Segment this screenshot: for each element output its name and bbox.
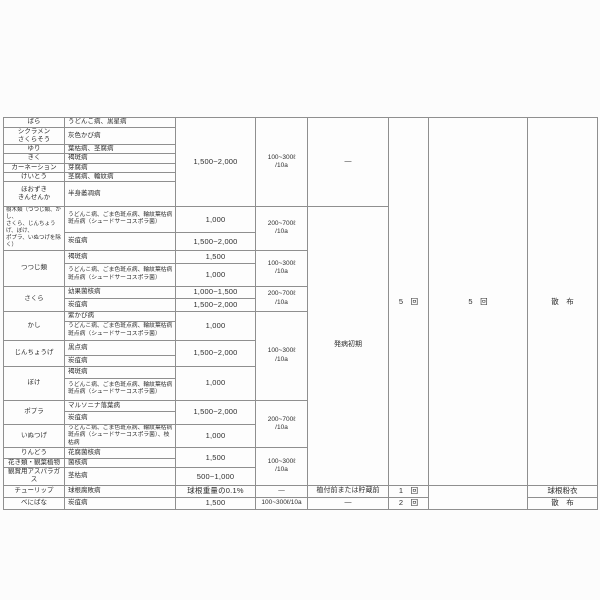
disease-cell: 炭疽病 xyxy=(65,355,176,366)
plant-cell: ほおずききんせんか xyxy=(4,181,65,206)
disease-cell: 茎腐病、輪紋病 xyxy=(65,172,176,181)
disease-cell: 炭疽病 xyxy=(65,411,176,424)
dilution-cell: 1,500 xyxy=(176,250,256,263)
dilution-cell: 球根重量の0.1% xyxy=(176,485,256,497)
disease-cell: 球根腐敗病 xyxy=(65,485,176,497)
disease-cell: 半身萎凋病 xyxy=(65,181,176,206)
disease-cell: 葉枯病、茎腐病 xyxy=(65,145,176,154)
disease-cell: うどんこ病、ごま色斑点病、輪紋葉枯病斑点病（シュードサーコスポラ菌） xyxy=(65,321,176,340)
dilution-cell: 1,000 xyxy=(176,263,256,286)
plant-cell: べにばな xyxy=(4,497,65,509)
plant-cell: つつじ類 xyxy=(4,250,65,286)
application-count-cell: 5 回 xyxy=(389,118,429,486)
plant-cell: 樹木類（つつじ類、かし、さくら、じんちょうげ、ぼけ、ポプラ、いぬつげを除く） xyxy=(4,206,65,250)
spray-volume-cell: 100~300ℓ/10a xyxy=(256,448,308,485)
disease-cell: 炭疽病 xyxy=(65,233,176,251)
application-count-cell: 1 回 xyxy=(389,485,429,497)
spray-volume-cell: 200~700ℓ/10a xyxy=(256,286,308,311)
disease-cell: マルソニナ落葉病 xyxy=(65,400,176,411)
disease-cell: 菌核病 xyxy=(65,459,176,468)
dilution-cell: 1,500 xyxy=(176,448,256,468)
method-cell: 球根粉衣 xyxy=(528,485,598,497)
usage-table-body: ばらうどんこ病、黒星病1,500~2,000100~300ℓ/10a—5 回5 … xyxy=(4,118,598,510)
spray-volume-cell: 100~300ℓ/10a xyxy=(256,497,308,509)
disease-cell: うどんこ病、ごま色斑点病、輪紋葉枯病斑点病（シュードサーコスポラ菌） xyxy=(65,378,176,400)
method-cell: 散 布 xyxy=(528,497,598,509)
plant-cell: かし xyxy=(4,311,65,340)
disease-cell: 茎枯病 xyxy=(65,468,176,485)
dilution-cell: 1,000~1,500 xyxy=(176,286,256,298)
timing-cell: 発病初期 xyxy=(308,206,389,485)
dilution-cell: 500~1,000 xyxy=(176,468,256,485)
dilution-cell: 1,500~2,000 xyxy=(176,298,256,311)
disease-cell: うどんこ病、ごま色斑点病、輪紋葉枯病斑点病（シュードサーコスポラ菌） xyxy=(65,206,176,232)
plant-cell: 観賞用アスパラガス xyxy=(4,468,65,485)
plant-cell: シクラメンさくらそう xyxy=(4,128,65,145)
plant-cell: じんちょうげ xyxy=(4,340,65,366)
disease-cell: 褐斑病 xyxy=(65,366,176,378)
plant-cell: チューリップ xyxy=(4,485,65,497)
plant-cell: けいとう xyxy=(4,172,65,181)
plant-cell: カーネーション xyxy=(4,163,65,172)
dilution-cell: 1,500~2,000 xyxy=(176,233,256,251)
disease-cell: うどんこ病、ごま色斑点病、輪紋葉枯病斑点病（シュードサーコスポラ菌） xyxy=(65,263,176,286)
plant-cell: ゆり xyxy=(4,145,65,154)
dilution-cell: 1,000 xyxy=(176,311,256,340)
dilution-cell: 1,500~2,000 xyxy=(176,400,256,424)
method-cell: 散 布 xyxy=(528,118,598,486)
timing-cell: 植付前または貯蔵前 xyxy=(308,485,389,497)
pesticide-usage-table: ばらうどんこ病、黒星病1,500~2,000100~300ℓ/10a—5 回5 … xyxy=(3,117,598,510)
disease-cell: 紫かび病 xyxy=(65,311,176,321)
disease-cell: 炭疽病 xyxy=(65,497,176,509)
disease-cell: うどんこ病、ごま色斑点病、輪紋葉枯病斑点病（シュードサーコスポラ菌）、枝枯病 xyxy=(65,424,176,448)
disease-cell: 幼果菌核病 xyxy=(65,286,176,298)
spray-volume-cell: 200~700ℓ/10a xyxy=(256,400,308,448)
dilution-cell: 1,000 xyxy=(176,366,256,400)
plant-cell: 花き類・観葉植物 xyxy=(4,459,65,468)
disease-cell: 褐斑病 xyxy=(65,154,176,163)
spray-volume-cell: 100~300ℓ/10a xyxy=(256,311,308,400)
spray-volume-cell: 100~300ℓ/10a xyxy=(256,250,308,286)
disease-cell: 灰色かび病 xyxy=(65,128,176,145)
table-row: ばらうどんこ病、黒星病1,500~2,000100~300ℓ/10a—5 回5 … xyxy=(4,118,598,128)
spray-volume-cell: 200~700ℓ/10a xyxy=(256,206,308,250)
disease-cell: 花腐菌核病 xyxy=(65,448,176,459)
total-count-cell: 5 回 xyxy=(429,118,528,486)
table-row: チューリップ球根腐敗病球根重量の0.1%—植付前または貯蔵前1 回球根粉衣 xyxy=(4,485,598,497)
plant-cell: りんどう xyxy=(4,448,65,459)
plant-cell: いぬつげ xyxy=(4,424,65,448)
dilution-cell: 1,500~2,000 xyxy=(176,118,256,207)
plant-cell: きく xyxy=(4,154,65,163)
plant-cell: ばら xyxy=(4,118,65,128)
plant-cell: ポプラ xyxy=(4,400,65,424)
dilution-cell: 1,000 xyxy=(176,206,256,232)
timing-cell: — xyxy=(308,118,389,207)
scanned-document-page: ばらうどんこ病、黒星病1,500~2,000100~300ℓ/10a—5 回5 … xyxy=(0,0,600,600)
spray-volume-cell: — xyxy=(256,485,308,497)
application-count-cell: 2 回 xyxy=(389,497,429,509)
total-count-cell xyxy=(429,485,528,509)
disease-cell: 炭疽病 xyxy=(65,298,176,311)
dilution-cell: 1,000 xyxy=(176,424,256,448)
dilution-cell: 1,500~2,000 xyxy=(176,340,256,366)
disease-cell: 褐斑病 xyxy=(65,250,176,263)
disease-cell: 黒点病 xyxy=(65,340,176,355)
timing-cell: — xyxy=(308,497,389,509)
plant-cell: ぼけ xyxy=(4,366,65,400)
dilution-cell: 1,500 xyxy=(176,497,256,509)
spray-volume-cell: 100~300ℓ/10a xyxy=(256,118,308,207)
disease-cell: うどんこ病、黒星病 xyxy=(65,118,176,128)
disease-cell: 芽腐病 xyxy=(65,163,176,172)
plant-cell: さくら xyxy=(4,286,65,311)
pesticide-usage-table-wrap: ばらうどんこ病、黒星病1,500~2,000100~300ℓ/10a—5 回5 … xyxy=(3,117,597,482)
